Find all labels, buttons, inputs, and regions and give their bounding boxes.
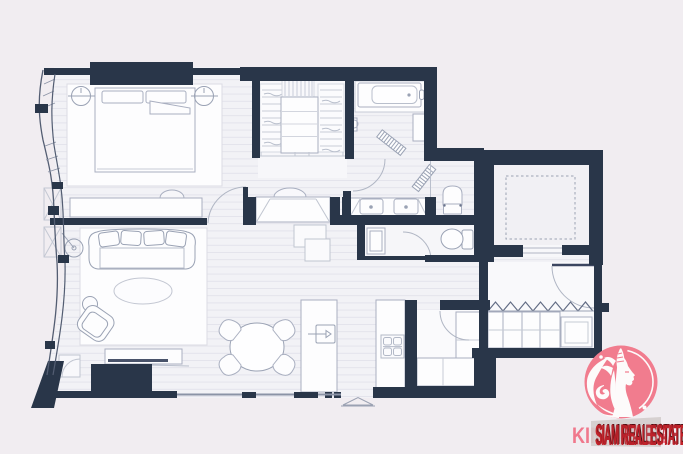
svg-text:SIAM REAL ESTATE: SIAM REAL ESTATE [597,420,678,451]
